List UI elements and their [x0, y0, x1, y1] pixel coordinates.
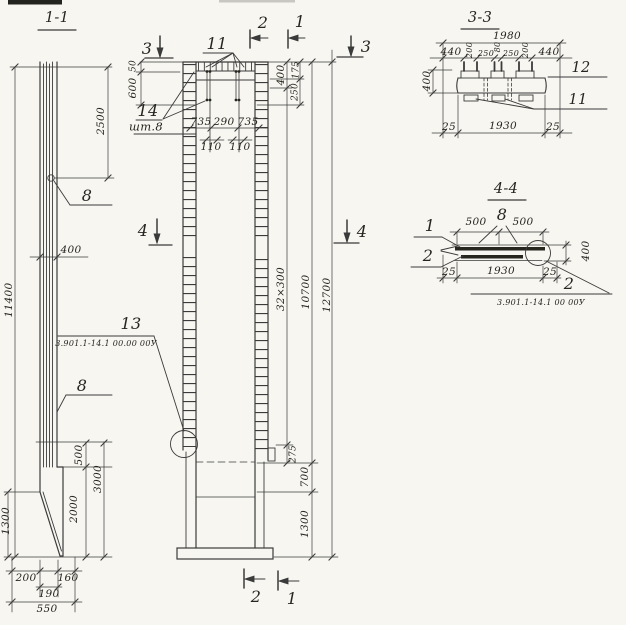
- dim-12700: 12700: [322, 278, 333, 313]
- dim-2500: 2500: [96, 107, 107, 135]
- doc-ref-plan: 3.901.1-14.1 00.00 00У: [55, 340, 157, 348]
- dim-1930-s33: 1930: [489, 121, 517, 132]
- dim-275: 275: [290, 445, 299, 463]
- dim-190: 190: [39, 589, 60, 600]
- dim-1980: 1980: [493, 31, 521, 42]
- callout-11-s33: 11: [568, 93, 587, 108]
- callout-1: 1: [425, 218, 435, 234]
- dim-160: 160: [58, 573, 79, 584]
- dim-735-left: 735: [191, 117, 212, 128]
- dim-110-left: 110: [201, 142, 222, 153]
- dim-25-left-s44: 25: [442, 267, 456, 278]
- dim-50: 50: [130, 60, 139, 72]
- section-mark-1-bottom: 1: [287, 591, 297, 607]
- section-mark-2-bottom: 2: [251, 589, 261, 605]
- callout-13: 13: [121, 316, 142, 332]
- callout-11: 11: [207, 36, 228, 52]
- dim-550: 550: [37, 604, 58, 615]
- callout-2: 2: [423, 248, 433, 264]
- dim-10700: 10700: [301, 275, 312, 310]
- callout-2-detail: 2: [564, 276, 574, 292]
- section-mark-1-top: 1: [295, 14, 305, 30]
- dim-250: 250: [292, 83, 301, 101]
- doc-ref-s44: 3.901.1-14.1 00 00У: [497, 299, 585, 307]
- dim-11400: 11400: [4, 283, 15, 318]
- callout-14: 14: [138, 103, 159, 119]
- dim-400-s33: 400: [422, 71, 433, 92]
- dim-200: 200: [16, 573, 37, 584]
- callout-8-lower: 8: [77, 378, 87, 394]
- callout-8-upper: 8: [82, 188, 92, 204]
- dim-25-right-s33: 25: [546, 122, 560, 133]
- dim-700: 700: [300, 467, 311, 488]
- scan-artifacts: [8, 0, 295, 5]
- dim-3000: 3000: [93, 465, 104, 493]
- dim-110-right: 110: [230, 142, 251, 153]
- callout-12: 12: [571, 61, 590, 76]
- dim-200-b: 200: [522, 42, 530, 58]
- dim-2000: 2000: [69, 495, 80, 523]
- dim-500-right: 500: [513, 217, 534, 228]
- dim-spacing-32x300: 32×300: [276, 267, 287, 311]
- section-mark-3-left: 3: [142, 41, 152, 57]
- section-title-1-1: 1-1: [45, 11, 69, 26]
- drawing-sheet: 1-1 11400 2500 8 400 8 500 3000 2000 130…: [0, 0, 626, 625]
- section-title-4-4: 4-4: [494, 182, 518, 197]
- section-mark-4-right: 4: [357, 224, 367, 240]
- dim-1930-s44: 1930: [487, 266, 515, 277]
- dim-290: 290: [214, 117, 235, 128]
- dim-735-right: 735: [238, 117, 259, 128]
- dim-175: 175: [293, 61, 302, 79]
- dim-440-left: 440: [441, 47, 462, 58]
- dim-400-plan: 400: [276, 65, 287, 86]
- dim-500: 500: [74, 445, 85, 466]
- dim-500-left: 500: [466, 217, 487, 228]
- dim-400-left: 400: [61, 245, 82, 256]
- section-mark-3-right: 3: [361, 39, 371, 55]
- dim-25-left-s33: 25: [442, 122, 456, 133]
- dim-200-a: 200: [466, 42, 474, 58]
- dim-250-b: 250: [503, 50, 519, 58]
- dim-440-right: 440: [539, 47, 560, 58]
- dim-1300-plan: 1300: [300, 510, 311, 538]
- dim-25-right-s44: 25: [543, 267, 557, 278]
- section-mark-4-left: 4: [138, 223, 148, 239]
- dim-1300-left: 1300: [1, 507, 12, 535]
- section-mark-2-top: 2: [258, 15, 268, 31]
- dim-400-s44: 400: [581, 241, 592, 262]
- dim-600: 600: [128, 78, 139, 99]
- linework: [0, 0, 626, 625]
- dim-250-a: 250: [478, 50, 494, 58]
- section-title-3-3: 3-3: [468, 11, 492, 26]
- callout-8-s44: 8: [497, 207, 507, 223]
- dim-80: 80: [494, 42, 502, 53]
- callout-14-qty: шт.8: [129, 121, 163, 133]
